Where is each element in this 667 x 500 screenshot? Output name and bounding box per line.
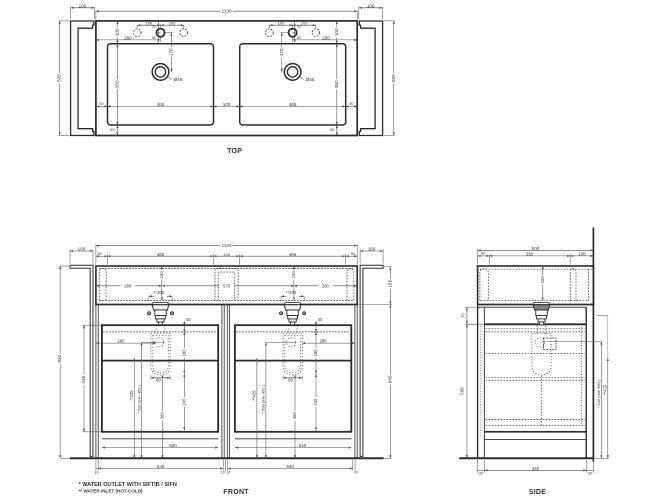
svg-text:350: 350 xyxy=(526,252,534,257)
svg-text:570: 570 xyxy=(223,283,231,288)
svg-text:50: 50 xyxy=(152,36,156,40)
svg-text:100: 100 xyxy=(301,20,308,25)
svg-text:1130: 1130 xyxy=(222,9,232,14)
svg-text:**425: **425 xyxy=(252,390,257,401)
svg-text:280: 280 xyxy=(322,36,330,41)
svg-text:280: 280 xyxy=(117,339,125,344)
svg-text:50: 50 xyxy=(110,128,114,132)
svg-text:165: 165 xyxy=(387,279,392,287)
svg-text:180: 180 xyxy=(181,349,186,357)
svg-text:80: 80 xyxy=(156,378,161,383)
svg-text:SIDE: SIDE xyxy=(529,489,547,496)
svg-text:10: 10 xyxy=(354,470,358,474)
svg-text:350: 350 xyxy=(114,80,119,88)
svg-text:100: 100 xyxy=(367,3,375,8)
svg-text:* 500 (min 450 ): * 500 (min 450 ) xyxy=(596,379,601,408)
svg-text:360: 360 xyxy=(160,412,165,420)
svg-text:**100: **100 xyxy=(286,290,297,295)
svg-text:100: 100 xyxy=(368,247,376,252)
svg-text:50: 50 xyxy=(481,252,485,256)
svg-text:* 500 (min 450 ): * 500 (min 450 ) xyxy=(261,385,266,414)
svg-text:100: 100 xyxy=(169,20,176,25)
svg-text:Ø46: Ø46 xyxy=(306,77,315,82)
svg-text:100: 100 xyxy=(334,28,339,36)
svg-text:50: 50 xyxy=(99,102,103,106)
svg-text:**100: **100 xyxy=(154,290,165,295)
svg-text:245: 245 xyxy=(181,398,186,406)
svg-text:500: 500 xyxy=(391,74,396,82)
svg-text:10 10: 10 10 xyxy=(221,470,231,474)
svg-text:50: 50 xyxy=(152,25,156,29)
svg-text:10: 10 xyxy=(94,470,98,474)
svg-text:**425: **425 xyxy=(129,390,134,401)
svg-text:80: 80 xyxy=(288,378,293,383)
svg-text:170: 170 xyxy=(168,48,173,56)
svg-text:Ø46: Ø46 xyxy=(174,77,183,82)
svg-text:245: 245 xyxy=(313,398,318,406)
svg-text:180: 180 xyxy=(313,349,318,357)
svg-text:170: 170 xyxy=(279,48,284,56)
svg-text:445: 445 xyxy=(81,375,86,383)
svg-text:30: 30 xyxy=(588,471,592,475)
svg-text:280: 280 xyxy=(124,36,132,41)
svg-text:40: 40 xyxy=(186,317,191,322)
svg-text:100: 100 xyxy=(78,247,86,252)
svg-text:50: 50 xyxy=(349,102,353,106)
svg-text:540: 540 xyxy=(157,464,165,469)
svg-text:30: 30 xyxy=(479,471,483,475)
svg-text:440: 440 xyxy=(532,466,540,471)
svg-text:540: 540 xyxy=(287,464,295,469)
svg-text:100: 100 xyxy=(79,3,87,8)
svg-text:465: 465 xyxy=(289,102,297,107)
svg-text:50: 50 xyxy=(351,252,355,256)
svg-text:FRONT: FRONT xyxy=(223,489,249,496)
svg-text:50: 50 xyxy=(297,36,301,40)
svg-text:** WATER INLET (HOT-COLD): ** WATER INLET (HOT-COLD) xyxy=(79,488,143,493)
svg-text:465: 465 xyxy=(157,102,165,107)
svg-text:40: 40 xyxy=(318,317,323,322)
svg-text:1130: 1130 xyxy=(222,243,232,248)
svg-text:520: 520 xyxy=(169,443,177,448)
svg-text:50: 50 xyxy=(97,252,101,256)
svg-text:**425: **425 xyxy=(603,384,608,395)
svg-text:* WATER OUTLET WITH SIFTIB /: * WATER OUTLET WITH SIFTIB / SIFN xyxy=(79,482,177,488)
svg-text:150: 150 xyxy=(540,276,545,284)
svg-text:280: 280 xyxy=(124,283,132,288)
svg-text:830: 830 xyxy=(57,354,62,362)
svg-text:150: 150 xyxy=(291,271,296,279)
svg-text:645: 645 xyxy=(387,375,392,383)
svg-text:100: 100 xyxy=(114,28,119,36)
svg-text:595: 595 xyxy=(459,387,464,395)
svg-text:465: 465 xyxy=(157,252,165,257)
svg-text:500: 500 xyxy=(532,246,540,251)
svg-text:150: 150 xyxy=(159,271,164,279)
svg-text:* 500 (min 450 ): * 500 (min 450 ) xyxy=(136,385,141,414)
svg-text:100: 100 xyxy=(578,252,586,257)
svg-text:280: 280 xyxy=(322,283,330,288)
svg-text:520: 520 xyxy=(299,443,307,448)
svg-text:50: 50 xyxy=(330,128,334,132)
svg-text:100: 100 xyxy=(223,252,230,257)
svg-text:360: 360 xyxy=(292,412,297,420)
svg-text:50: 50 xyxy=(297,25,301,29)
svg-text:100: 100 xyxy=(223,102,231,107)
svg-text:465: 465 xyxy=(289,252,297,257)
svg-text:70: 70 xyxy=(461,313,466,318)
svg-text:280: 280 xyxy=(320,339,328,344)
svg-text:TOP: TOP xyxy=(227,148,242,155)
svg-text:100: 100 xyxy=(278,20,285,25)
svg-text:500: 500 xyxy=(57,74,62,82)
svg-text:350: 350 xyxy=(334,80,339,88)
